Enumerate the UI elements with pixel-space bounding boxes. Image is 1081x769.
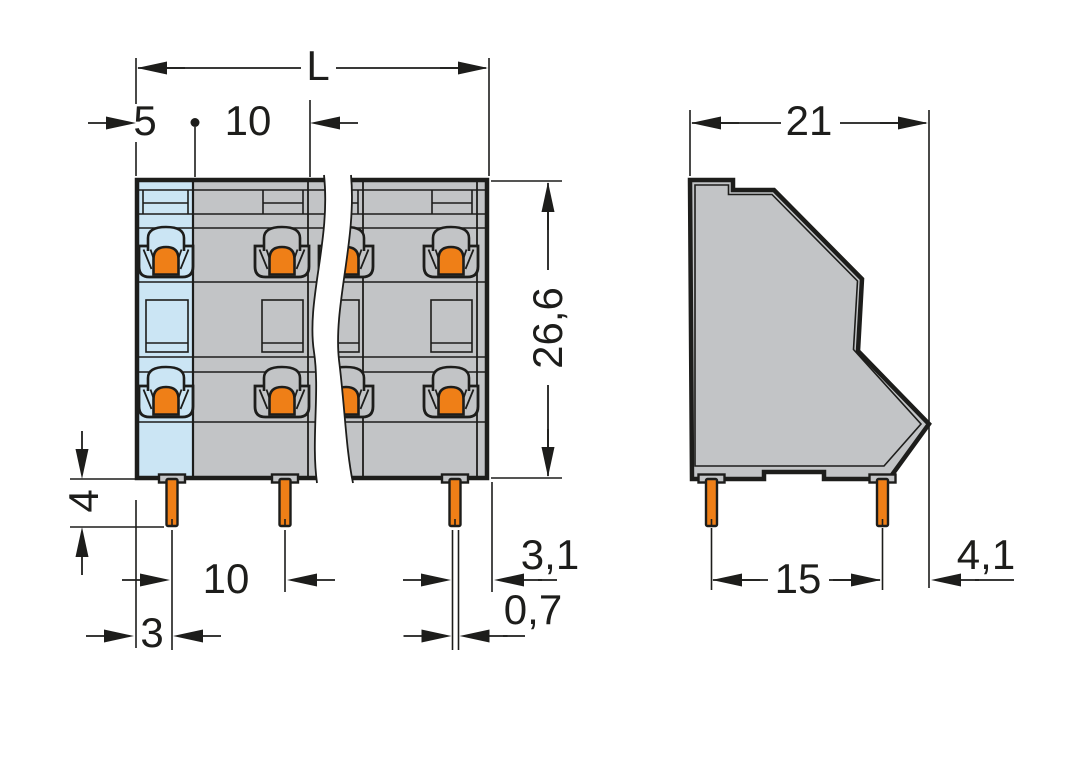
dim-pitch-label: 10 bbox=[225, 100, 272, 142]
solder-pin bbox=[167, 479, 178, 526]
solder-pin bbox=[450, 479, 461, 526]
side-profile-outline bbox=[690, 180, 929, 479]
dim-depth-label: 21 bbox=[786, 100, 833, 142]
dim-overall-length-label: L bbox=[306, 45, 329, 87]
front-pins bbox=[159, 475, 468, 527]
dim-overhang-label: 4,1 bbox=[957, 534, 1015, 576]
side-view bbox=[690, 180, 929, 526]
dim-pole-offset-label: 5 bbox=[133, 100, 156, 142]
dim-pin-length-label: 4 bbox=[63, 489, 105, 512]
dim-height-label: 26,6 bbox=[527, 287, 569, 369]
dimension-drawing: L 5 10 26,6 4 10 3 3,1 0,7 21 15 4,1 bbox=[0, 0, 1081, 769]
reference-dot bbox=[191, 118, 200, 127]
side-pins bbox=[699, 475, 896, 527]
front-view bbox=[137, 175, 487, 526]
dim-pin-pitch-label: 10 bbox=[203, 558, 250, 600]
dim-pin-to-edge-label: 3,1 bbox=[521, 534, 579, 576]
solder-pin bbox=[877, 479, 888, 526]
dim-pin-edge-offset-label: 3 bbox=[140, 612, 163, 654]
dim-pin-width-label: 0,7 bbox=[504, 589, 562, 631]
solder-pin bbox=[280, 479, 291, 526]
dim-pin-row-spacing-label: 15 bbox=[775, 558, 822, 600]
solder-pin bbox=[706, 479, 717, 526]
